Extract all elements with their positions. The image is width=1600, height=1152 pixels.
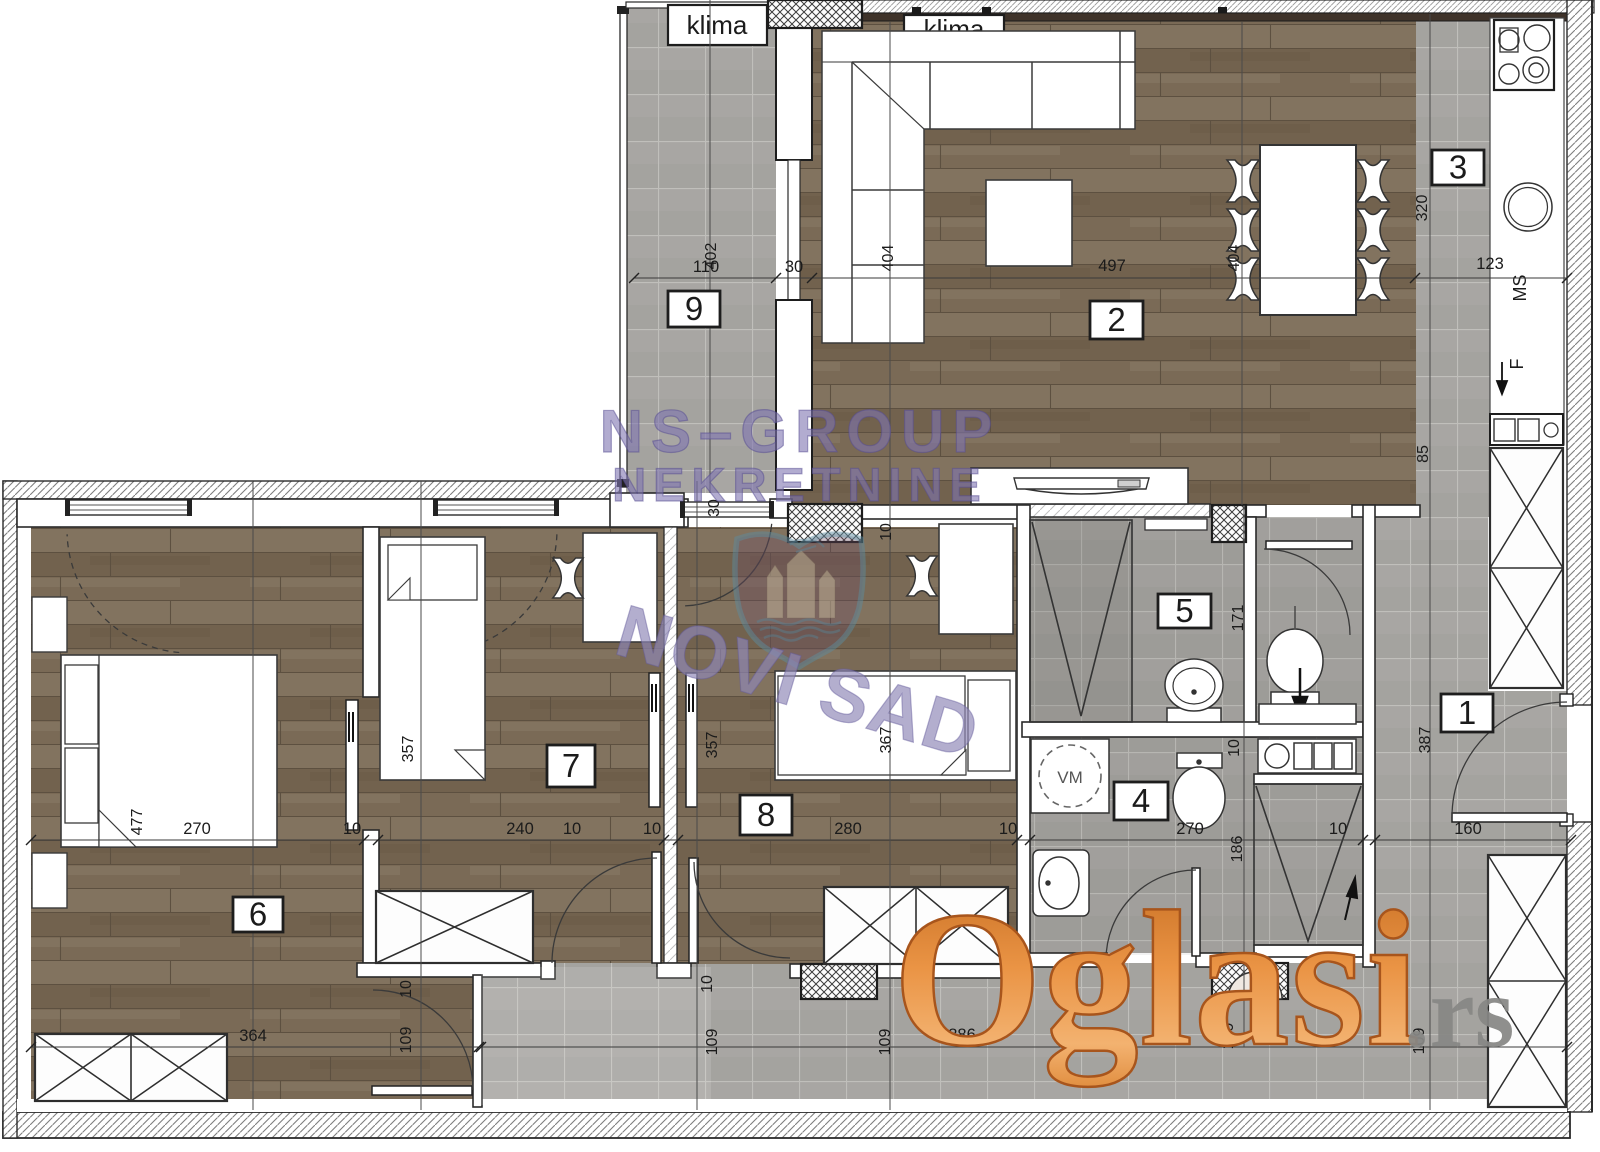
svg-text:NEKRETNINE: NEKRETNINE [612,458,988,511]
svg-text:10: 10 [563,820,581,838]
svg-text:270: 270 [1176,820,1204,838]
svg-text:109: 109 [704,1029,721,1056]
svg-text:10: 10 [643,820,661,838]
svg-text:280: 280 [834,820,862,838]
svg-text:6: 6 [249,896,267,933]
svg-text:270: 270 [183,820,211,838]
svg-text:404: 404 [880,245,897,272]
svg-text:9: 9 [685,290,703,327]
svg-text:10: 10 [699,975,716,993]
svg-text:240: 240 [506,820,534,838]
svg-text:klima: klima [687,10,748,40]
svg-text:160: 160 [1454,820,1482,838]
svg-text:3: 3 [1449,149,1467,186]
svg-text:.rs: .rs [1404,956,1514,1069]
svg-text:109: 109 [398,1027,415,1054]
svg-text:10: 10 [343,820,361,838]
svg-text:1: 1 [1458,694,1476,731]
svg-text:404: 404 [1226,245,1243,272]
svg-text:387: 387 [1417,727,1434,754]
svg-text:357: 357 [704,732,721,759]
svg-text:85: 85 [1415,445,1432,463]
svg-text:109: 109 [877,1029,894,1056]
svg-text:5: 5 [1175,592,1193,629]
svg-text:NS–GROUP: NS–GROUP [600,398,1001,465]
svg-text:10: 10 [878,523,895,541]
svg-text:VM: VM [1057,768,1083,787]
svg-text:123: 123 [1476,255,1504,273]
svg-text:7: 7 [562,747,580,784]
svg-text:364: 364 [239,1027,267,1045]
svg-text:320: 320 [1414,195,1431,222]
svg-text:402: 402 [703,243,720,270]
svg-text:10: 10 [999,820,1017,838]
svg-text:497: 497 [1098,257,1126,275]
svg-text:2: 2 [1107,301,1125,338]
svg-text:4: 4 [1132,782,1150,819]
svg-text:357: 357 [400,736,417,763]
svg-text:186: 186 [1229,836,1246,863]
svg-text:30: 30 [785,258,803,276]
svg-text:10: 10 [1329,820,1347,838]
svg-text:Oglasi: Oglasi [893,871,1420,1087]
svg-text:8: 8 [757,796,775,833]
svg-text:477: 477 [129,809,146,836]
svg-text:10: 10 [398,980,415,998]
svg-text:171: 171 [1230,605,1247,632]
svg-text:F: F [1507,359,1527,370]
svg-text:10: 10 [1226,739,1243,757]
